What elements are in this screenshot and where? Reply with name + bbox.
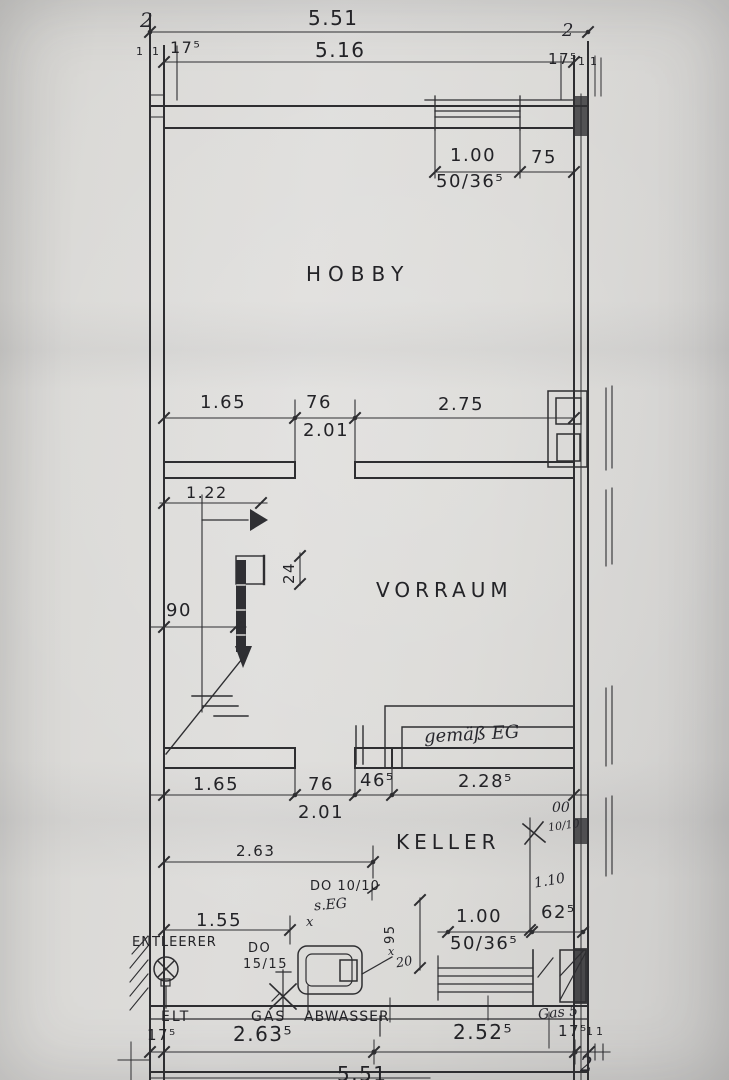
hand-note-00: 00: [552, 801, 570, 815]
dim-wall-right: 17⁵: [548, 52, 578, 67]
dim-window-bottom-width: 1.00: [456, 908, 502, 926]
dim-hobby-door-height: 2.01: [303, 422, 349, 440]
dim-tick: 1: [152, 46, 161, 57]
hand-x-mark: x: [388, 946, 394, 957]
dimension-tick-marks: [145, 27, 594, 1057]
dim-overall-bottom: 5.51: [337, 1064, 388, 1080]
dim-bottom-wall-left: 17⁵: [147, 1028, 177, 1043]
dim-keller-length: 2.63: [236, 844, 275, 859]
dim-window-bottom-depth: 95: [384, 924, 397, 944]
dim-bottom-right: 2.52⁵: [453, 1022, 513, 1042]
dim-hobby-right: 2.75: [438, 396, 484, 414]
dim-keller-pier: 46⁵: [360, 772, 395, 790]
dim-keller-door-height: 2.01: [298, 804, 344, 822]
dim-tick: 1: [596, 1026, 605, 1037]
dim-inner-top: 5.16: [315, 40, 366, 60]
duct-do-label: DO: [248, 942, 271, 955]
window-top: [425, 96, 574, 130]
service-label-elt: ELT: [161, 1010, 190, 1024]
dim-drain: 1.55: [196, 912, 242, 930]
dim-bottom-wall-right: 17⁵: [558, 1024, 588, 1039]
service-label-abwasser: ABWASSER: [304, 1010, 390, 1024]
window-bottom-spec: 50/36⁵: [450, 935, 518, 953]
duct-do-size: 15/15: [243, 958, 288, 971]
outer-walls: [118, 14, 601, 1080]
room-label-keller: KELLER: [396, 832, 501, 852]
dim-hobby-door-width: 76: [306, 394, 332, 412]
duct-label-do10: DO 10/10: [310, 880, 380, 893]
drain-label: ENTLEERER: [132, 936, 217, 949]
dim-wall-left: 17⁵: [170, 40, 201, 56]
hand-note-20: 20: [395, 955, 414, 971]
hand-note-gas: Gas 5: [537, 1004, 578, 1022]
dimension-dots: [148, 30, 591, 1055]
room-label-vorraum: VORRAUM: [376, 580, 513, 600]
dim-corner-left: 2: [140, 10, 153, 30]
dim-keller-door-width: 76: [308, 776, 334, 794]
staircase: [166, 509, 268, 754]
dim-bottom-left: 2.63⁵: [233, 1024, 293, 1044]
dim-window-top-offset: 75: [531, 149, 557, 167]
dim-stair-width: 1.22: [186, 485, 228, 501]
dim-tick: 1: [590, 56, 599, 67]
dim-keller-left: 1.65: [193, 776, 239, 794]
dim-stair-offset: 90: [166, 602, 192, 620]
floorplan-scan: 2 5.51 1 1 17⁵ 5.16 2 17⁵ 1 1 1.00 75 50…: [0, 0, 729, 1080]
dim-tick: 1: [586, 1026, 595, 1037]
dim-hobby-left: 1.65: [200, 394, 246, 412]
dim-tick: 1: [578, 56, 587, 67]
right-dim-ticks: [606, 386, 612, 876]
hand-note-seg: s.EG: [313, 897, 347, 914]
floor-drain-symbol: [154, 957, 178, 1008]
wall-note: gemäß EG: [424, 724, 520, 747]
dim-overall-top: 5.51: [308, 8, 359, 28]
window-bottom: [438, 950, 586, 1006]
dim-keller-sill: 62⁵: [541, 904, 576, 922]
dim-tick: 1: [136, 46, 145, 57]
dim-keller-right: 2.28⁵: [458, 773, 513, 791]
window-top-spec: 50/36⁵: [436, 173, 504, 191]
room-label-hobby: HOBBY: [306, 264, 410, 284]
floorplan-linework: [0, 0, 729, 1080]
dim-window-top-width: 1.00: [450, 147, 496, 165]
hand-x-mark: x: [306, 916, 313, 929]
dim-corner-right: 2: [562, 22, 573, 40]
dim-corner-bottom: 2: [580, 1054, 593, 1074]
dim-stair-column: 24: [282, 562, 297, 584]
